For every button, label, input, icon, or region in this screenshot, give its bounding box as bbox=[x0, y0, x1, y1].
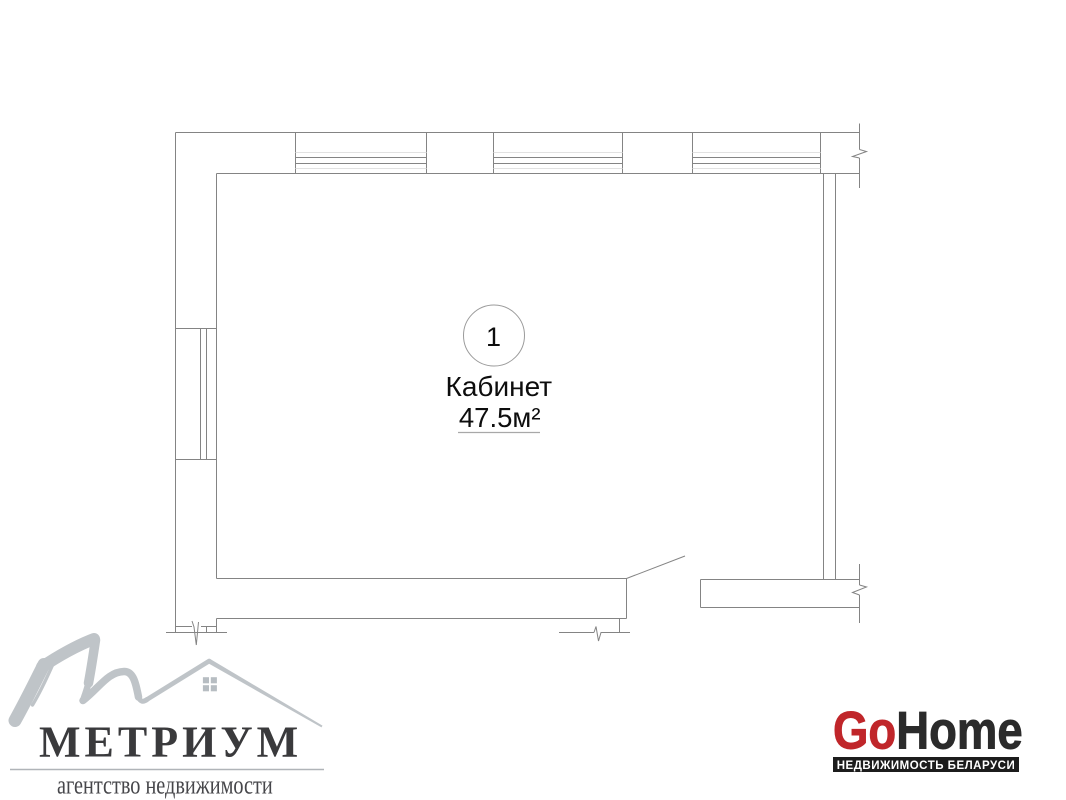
svg-text:НЕДВИЖИМОСТЬ БЕЛАРУСИ: НЕДВИЖИМОСТЬ БЕЛАРУСИ bbox=[837, 760, 1015, 772]
svg-text:Кабинет: Кабинет bbox=[446, 371, 553, 402]
svg-text:1: 1 bbox=[486, 322, 501, 352]
svg-text:агентство недвижимости: агентство недвижимости bbox=[57, 771, 273, 800]
svg-text:GoHome: GoHome bbox=[833, 703, 1023, 761]
svg-text:47.5м²: 47.5м² bbox=[459, 402, 541, 433]
svg-text:МЕТРИУМ: МЕТРИУМ bbox=[39, 718, 302, 767]
